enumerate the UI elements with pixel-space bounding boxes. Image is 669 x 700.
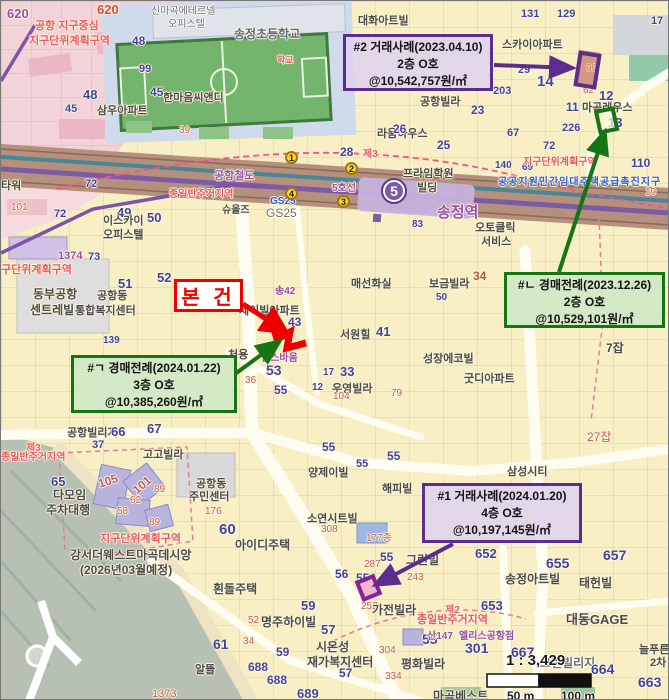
- parcel-number: 334: [385, 671, 402, 682]
- map-label: 고고빌라: [143, 446, 183, 462]
- parcel-number: 657: [603, 547, 626, 563]
- callout-case1-price: @10,197,145원/㎡: [428, 522, 576, 539]
- parcel-number: 56: [335, 567, 348, 581]
- parcel-number: 67: [147, 421, 161, 436]
- callout-case1-unit: 4층 O호: [428, 505, 576, 522]
- map-label: 지구단위계획구역: [100, 530, 181, 546]
- map-label: 흰돌주택: [213, 580, 257, 597]
- parcel-number: 129: [557, 8, 575, 20]
- parcel-number: 243: [407, 572, 424, 583]
- map-label: 지구단위계획구역: [29, 32, 110, 48]
- map-label: 종일반주거지역: [417, 611, 488, 627]
- parcel-number: 39: [179, 125, 190, 136]
- store-label: GS25: [266, 206, 297, 220]
- parcel-number: 52: [248, 615, 259, 626]
- parcel-number: 50: [147, 210, 161, 225]
- parcel-number: 83: [412, 219, 423, 230]
- map-label: 송42: [275, 282, 295, 297]
- parcel-number: 37: [92, 439, 104, 451]
- parcel-number: 55: [356, 458, 368, 470]
- map-label: 빌딩: [417, 179, 437, 195]
- parcel-number: 55: [274, 383, 287, 397]
- subject-property-box: 본 건: [174, 279, 243, 312]
- callout-case2-title: #2 거래사례(2023.04.10): [349, 39, 487, 56]
- parcel-number: 19: [645, 187, 656, 198]
- parcel-number: 89: [149, 517, 160, 528]
- map-label: 해피빌: [382, 480, 412, 496]
- map-label: 구단위계획구역: [1, 261, 72, 277]
- scale-50m-label: 50 m: [507, 689, 534, 700]
- map-label: 제이빌아파트: [239, 302, 300, 318]
- map-label: 삼우아파트: [97, 102, 148, 118]
- parcel-number: 28: [340, 145, 353, 159]
- map-label: 다모임: [53, 486, 86, 503]
- parcel-number: 67: [507, 127, 519, 139]
- map-label: 태헌빌: [579, 574, 612, 591]
- parcel-number: 689: [297, 686, 319, 700]
- parcel-number: 48: [132, 34, 145, 48]
- map-label: 마곡베스트: [433, 687, 488, 700]
- parcel-number: 72: [54, 208, 66, 220]
- parcel-number: 131: [521, 8, 539, 20]
- callout-case1-title: #1 거래사례(2024.01.20): [428, 488, 576, 505]
- map-label: 웰스바움: [261, 349, 298, 364]
- map-label: 공항 지구중심: [35, 17, 99, 33]
- parcel-number: 72: [85, 178, 97, 190]
- map-label: 굿디아파트: [464, 370, 515, 386]
- station-name: 송정역: [437, 201, 478, 222]
- parcel-number: 655: [546, 555, 569, 571]
- map-label: 2차: [650, 654, 666, 670]
- parcel-number: 13: [608, 115, 622, 130]
- parcel-number: 17: [323, 367, 334, 378]
- map-label: 오피스텔: [103, 226, 143, 242]
- map-base-graphics: [1, 1, 669, 700]
- map-label: 오토클릭: [475, 219, 515, 235]
- map-label: 통합복지센터: [75, 302, 136, 318]
- map-label: 제3: [26, 439, 41, 454]
- map-label: 마곡레우스: [582, 99, 633, 115]
- parcel-number: 203: [493, 85, 511, 97]
- map-label: 프라임학원: [403, 165, 454, 181]
- parcel-number: 52: [157, 270, 171, 285]
- airport-rail-line: [1, 157, 669, 201]
- parcel-number: 41: [376, 324, 390, 339]
- parcel-number: 59: [276, 645, 289, 659]
- map-label: 620: [7, 6, 29, 21]
- parcel-number: 105: [96, 471, 119, 491]
- auction-n-arrow: [559, 131, 605, 272]
- map-label: 지구단위계획구역: [523, 153, 597, 168]
- parcel-number: 23: [471, 103, 484, 117]
- rail-stop-badge: 3: [337, 195, 350, 208]
- map-label: 오피스텔: [168, 15, 205, 30]
- map-label: 대동GAGE: [566, 609, 628, 628]
- parcel-number: 12: [312, 382, 323, 393]
- water-area: [1, 433, 253, 700]
- green-strip: [629, 55, 669, 81]
- soccer-field: [117, 34, 331, 131]
- map-label: 알뜰: [195, 661, 215, 677]
- callout-auction-g-title: #ㄱ 경매전례(2024.01.22): [77, 360, 231, 377]
- map-label: 시온성: [316, 638, 349, 655]
- map-label: 공항철도: [214, 167, 254, 183]
- parcel-number: 688: [248, 660, 268, 674]
- parcel-number: 49: [117, 205, 131, 220]
- parcel-number: 1374: [58, 250, 82, 262]
- parcel-number: 43: [288, 315, 301, 329]
- callout-auction-g-price: @10,385,260원/㎡: [77, 394, 231, 411]
- map-label: 스카이아파트: [502, 36, 563, 52]
- zone-boundaries: [1, 25, 669, 641]
- parcel-number: 34: [473, 269, 486, 283]
- parcel-number: 55: [387, 449, 400, 463]
- parcel-number: 55: [380, 550, 393, 564]
- map-label: 명주하이빌: [261, 613, 316, 630]
- map-label: (2026년03월예정): [80, 561, 172, 578]
- callout-auction-n-unit: 2층 O호: [510, 294, 659, 311]
- parcel-number: 12: [599, 88, 613, 103]
- annotation-overlay: [1, 1, 669, 700]
- parcel-number: 301: [465, 640, 488, 656]
- parcel-number: 663: [638, 674, 661, 690]
- parcel-number: 304: [379, 645, 396, 656]
- parcel-number: 60: [219, 521, 236, 538]
- map-label: 재가복지센터: [307, 653, 373, 670]
- parcel-number: 226: [562, 122, 580, 134]
- auction-n-parcel-marker: [596, 108, 617, 132]
- map-label: 강서더웨스트마곡데시앙: [70, 546, 191, 563]
- map-label: 제2: [445, 601, 460, 616]
- parcel-number: 308: [321, 524, 338, 535]
- parcel-number: 72: [543, 140, 555, 152]
- parcel-number: 653: [481, 598, 503, 613]
- parcel-number: 73: [88, 251, 100, 263]
- parcel-number: 69: [522, 162, 533, 173]
- map-label: 성장에코빌: [423, 350, 474, 366]
- parcel-number: 140: [495, 160, 512, 171]
- map-label: 동부공항: [33, 285, 77, 302]
- map-label: 송정초등학교: [234, 25, 300, 42]
- parcel-number: 36: [245, 375, 256, 386]
- map-label: 5호선: [332, 179, 356, 194]
- map-label: 그린빌: [406, 551, 439, 568]
- line5-track: [1, 169, 669, 213]
- parcel-number: 62: [130, 495, 141, 506]
- map-label: 공항빌라: [420, 93, 460, 109]
- parcel-number: 66: [111, 424, 125, 439]
- parcel-number: 652: [475, 546, 497, 561]
- map-label: 서비스: [481, 233, 511, 249]
- parcel-base: [1, 1, 669, 700]
- parcel-number: 101: [11, 202, 28, 213]
- callout-auction-n-price: @10,529,101원/㎡: [510, 311, 659, 328]
- map-label: 주차대행: [46, 501, 90, 518]
- map-label: 가전빌라: [372, 601, 416, 618]
- map-label: 양제이빌: [308, 464, 348, 480]
- parcel-number: 7잡: [606, 339, 624, 356]
- parcel-number: 139: [103, 335, 120, 346]
- subject-arrow: [243, 304, 286, 332]
- map-label: 타워: [1, 177, 21, 193]
- parcel-number: 53: [266, 362, 282, 378]
- station-area: [357, 177, 475, 219]
- parcel-number: 176: [205, 506, 222, 517]
- subway-line5-badge: 5: [383, 180, 405, 202]
- parcel-number: 33: [340, 364, 354, 379]
- map-label: 종일반주거지역: [169, 185, 233, 200]
- parcel-number: 50: [436, 292, 447, 303]
- map-label: 엘리스공항점: [459, 627, 514, 642]
- parcel-number: 34: [243, 636, 254, 647]
- callout-case2-price: @10,542,757원/㎡: [349, 73, 487, 90]
- parcel-number: 14: [537, 73, 554, 90]
- parcel-number: 99: [139, 63, 151, 75]
- rail-stop-badge: 2: [345, 162, 358, 175]
- parcel-number: 99: [586, 63, 597, 74]
- parcel-number: 89: [154, 484, 165, 495]
- parcel-number: 177종: [366, 529, 392, 544]
- map-label: 공항동: [97, 287, 127, 303]
- case2-arrow: [494, 65, 573, 68]
- parcel-number: 79: [391, 388, 402, 399]
- map-label: 송정아트빌: [505, 570, 560, 587]
- map-label: 공항빌리지: [67, 424, 118, 440]
- rail-stop-badge: 1: [285, 151, 298, 164]
- parcel-number: 51: [118, 276, 132, 291]
- map-label: 소연시트빌: [307, 510, 358, 526]
- parcel-number: 65: [51, 474, 65, 489]
- map-label: 센트레빌: [30, 301, 74, 318]
- map-label: 대화아트빌: [358, 12, 409, 28]
- map-label: 공공지원민간임대주택공급촉진지구: [498, 173, 661, 188]
- parcel-number: 11: [566, 100, 579, 114]
- parcel-number: 48: [83, 87, 97, 102]
- map-label: 아이디주택: [235, 536, 290, 553]
- parcel-number: 110: [631, 156, 650, 170]
- callout-auction-g: #ㄱ 경매전례(2024.01.22) 3층 O호 @10,385,260원/㎡: [71, 355, 237, 413]
- map-label: 보금빌라: [429, 275, 469, 291]
- parcel-number: 252: [361, 601, 378, 612]
- callout-case2: #2 거래사례(2023.04.10) 2층 O호 @10,542,757원/㎡: [343, 34, 493, 91]
- map-label: 우영빌라: [332, 380, 372, 396]
- parcel-number: 101: [130, 473, 154, 497]
- callout-case1: #1 거래사례(2024.01.20) 4층 O호 @10,197,145원/㎡: [422, 483, 582, 543]
- parcel-number: 688: [267, 673, 287, 687]
- map-label: 제3: [363, 145, 378, 160]
- map-label: 산147: [427, 627, 453, 642]
- map-scale-ratio: 1 : 3,429: [506, 652, 565, 669]
- railway-band: [1, 144, 669, 230]
- rail-stop-badge: 4: [285, 187, 298, 200]
- parcel-number: 664: [591, 661, 614, 677]
- map-label: 이스카이: [103, 212, 143, 228]
- parcel-number: 55: [356, 571, 369, 585]
- parcel-number: 55: [322, 440, 335, 454]
- parcel-number: 29: [518, 64, 530, 76]
- map-label: 평화빌라: [401, 655, 445, 672]
- map-label: 학교: [277, 53, 294, 66]
- subject-parcel-marker: [272, 322, 306, 348]
- parcel-number: 45: [150, 85, 163, 99]
- parcel-number: 57: [339, 666, 352, 680]
- auction-g-arrow: [235, 341, 280, 374]
- parcel-number: 1373: [152, 688, 176, 700]
- map-label: 신마곡에테르넬: [151, 2, 215, 17]
- parcel-number: 58: [117, 506, 128, 517]
- map-label: 공항동: [196, 475, 226, 491]
- parcel-number: 287: [364, 559, 381, 570]
- case1-arrow: [375, 544, 453, 585]
- parcel-number: 27잡: [587, 428, 611, 445]
- case1-parcel-marker: [357, 576, 380, 599]
- parcel-number: 17: [651, 15, 663, 27]
- map-label: 서원힐: [340, 326, 370, 342]
- school-grounds: [102, 1, 357, 143]
- parcel-number: 61: [213, 636, 229, 652]
- parcel-number: 104: [333, 391, 350, 402]
- gray-block: [613, 15, 669, 55]
- parcel-number: 55: [422, 631, 438, 647]
- map-label: 삼성시티: [507, 463, 547, 479]
- pink-zone: [1, 1, 239, 239]
- map-label: 늘푸른벽: [639, 641, 669, 657]
- map-label: 한마음씨앤디: [163, 89, 224, 105]
- map-label: 라움하우스: [377, 125, 428, 141]
- scale-bar: [487, 674, 591, 687]
- parcel-number: 45: [65, 103, 77, 115]
- callout-case2-unit: 2층 O호: [349, 56, 487, 73]
- callout-auction-n: #ㄴ 경매전례(2023.12.26) 2층 O호 @10,529,101원/㎡: [504, 272, 665, 328]
- parcel-number: 26: [393, 122, 406, 136]
- case2-parcel-marker: [576, 53, 600, 88]
- parcel-number: 59: [301, 598, 315, 613]
- callout-auction-n-title: #ㄴ 경매전례(2023.12.26): [510, 277, 659, 294]
- map-label: 종일반주거지역: [1, 448, 65, 463]
- map-canvas[interactable]: 620 620 공항 지구중심 지구단위계획구역 신마곡에테르넬 오피스텔 한마…: [0, 0, 669, 700]
- parcel-number: 57: [321, 622, 335, 637]
- map-label: 슈올즈: [222, 201, 250, 216]
- scale-100m-label: 100 m: [561, 689, 595, 700]
- parcel-number: 62: [583, 85, 594, 96]
- map-label: 매선화실: [351, 275, 391, 291]
- map-label: 620: [97, 2, 119, 17]
- map-label: 주민센터: [189, 488, 229, 504]
- parcel-number: 25: [437, 138, 450, 152]
- callout-auction-g-unit: 3층 O호: [77, 377, 231, 394]
